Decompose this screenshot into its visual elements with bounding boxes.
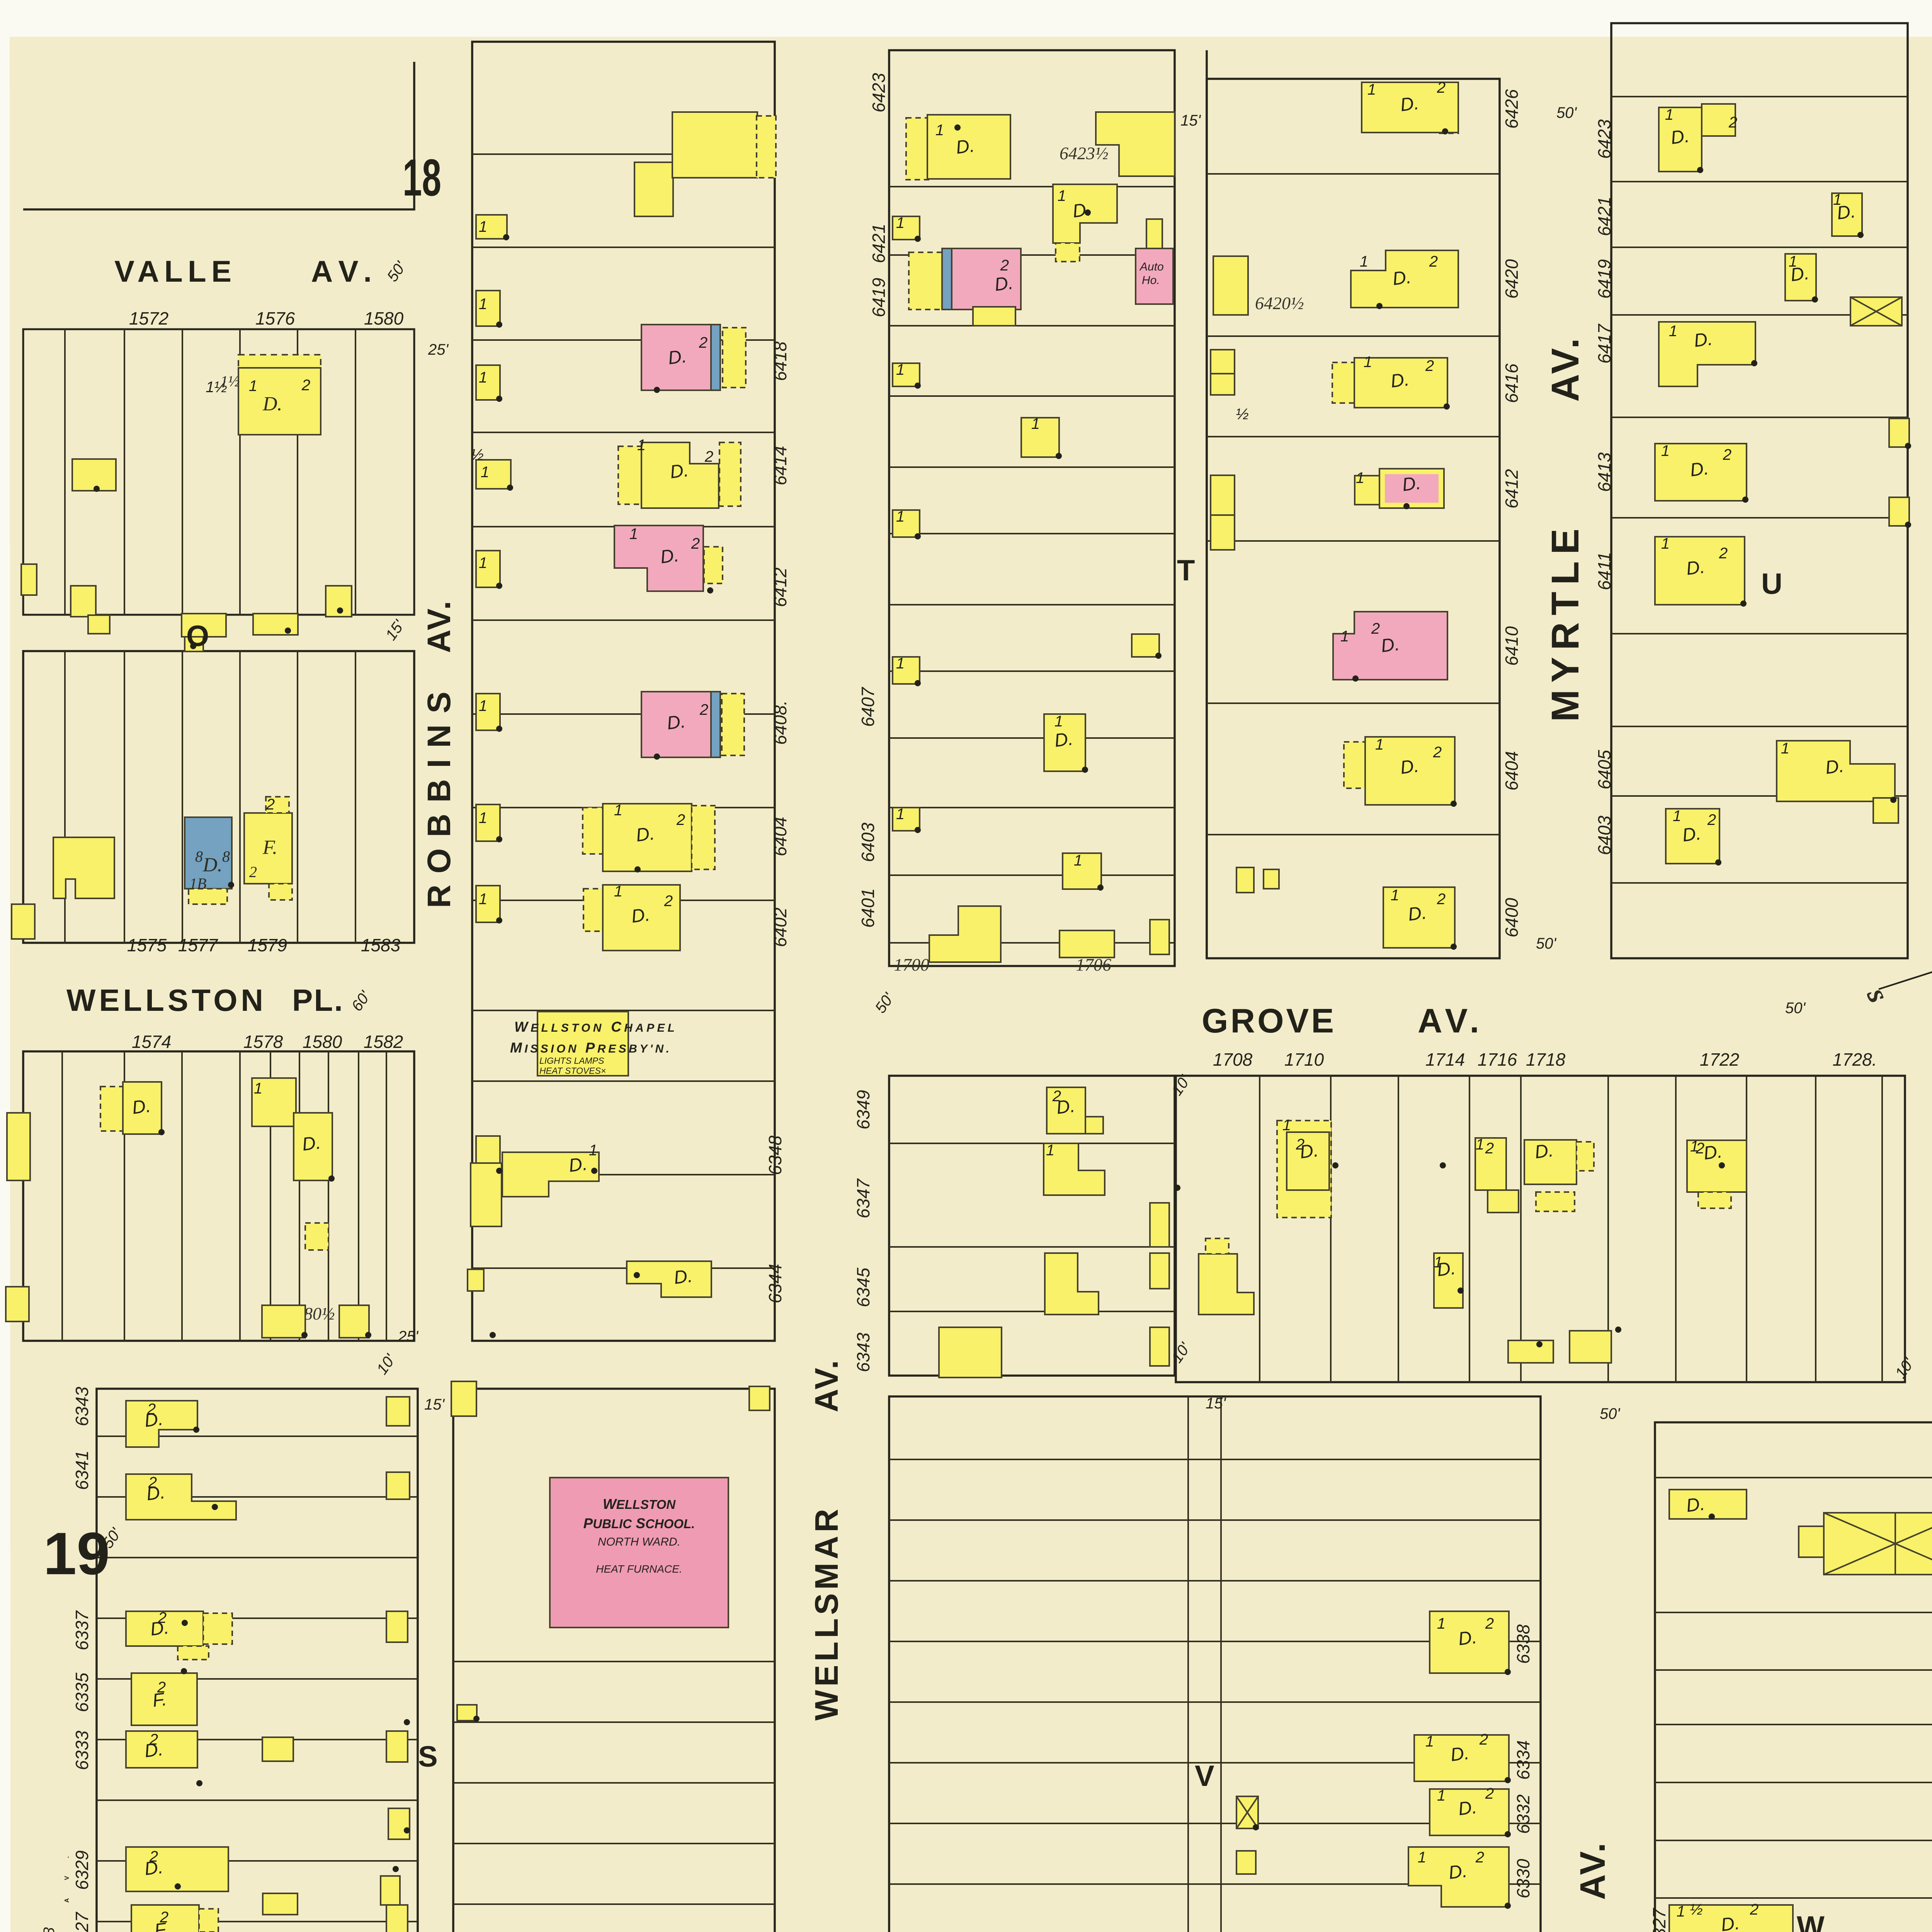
svg-text:6423: 6423 <box>869 73 889 112</box>
svg-text:6420: 6420 <box>1502 259 1522 299</box>
svg-text:1580: 1580 <box>364 308 404 328</box>
svg-text:1: 1 <box>1437 1615 1446 1632</box>
svg-text:D.: D. <box>262 393 282 415</box>
svg-text:6411: 6411 <box>1594 552 1614 590</box>
svg-text:6412: 6412 <box>770 568 790 607</box>
svg-text:D.: D. <box>1681 823 1702 845</box>
svg-text:6423½: 6423½ <box>1060 143 1109 163</box>
svg-text:AV.: AV. <box>1418 1002 1479 1040</box>
svg-text:1: 1 <box>249 378 257 395</box>
svg-text:NORTH WARD.: NORTH WARD. <box>598 1536 680 1548</box>
svg-text:S: S <box>418 1740 438 1773</box>
svg-text:15': 15' <box>1206 1395 1226 1412</box>
svg-text:1716: 1716 <box>1478 1049 1517 1070</box>
svg-text:AV.: AV. <box>808 1360 845 1412</box>
svg-text:6348: 6348 <box>765 1135 785 1175</box>
svg-text:D.: D. <box>993 272 1014 295</box>
svg-text:1580: 1580 <box>303 1032 342 1052</box>
svg-text:6341: 6341 <box>72 1451 92 1490</box>
svg-text:U: U <box>1761 568 1782 600</box>
svg-text:1: 1 <box>1340 628 1349 645</box>
svg-text:1: 1 <box>1789 253 1797 270</box>
svg-text:2: 2 <box>1437 891 1446 908</box>
svg-text:1: 1 <box>1437 1787 1446 1804</box>
svg-text:D.: D. <box>666 711 687 733</box>
svg-text:1: 1 <box>1673 808 1681 825</box>
svg-text:1: 1 <box>1367 81 1376 98</box>
svg-text:6337: 6337 <box>72 1610 92 1650</box>
svg-text:1: 1 <box>896 508 905 525</box>
svg-text:D.: D. <box>635 823 656 845</box>
svg-text:PUBLIC SCHOOL.: PUBLIC SCHOOL. <box>583 1515 695 1531</box>
svg-text:1: 1 <box>1669 323 1677 340</box>
svg-text:O: O <box>186 620 209 653</box>
svg-text:6403: 6403 <box>858 822 878 862</box>
svg-text:2: 2 <box>676 811 685 828</box>
svg-text:D.: D. <box>1702 1141 1723 1163</box>
svg-text:6327: 6327 <box>1649 1908 1669 1932</box>
svg-text:2: 2 <box>1728 114 1737 131</box>
svg-text:6418: 6418 <box>770 341 790 381</box>
svg-text:1708: 1708 <box>1213 1049 1253 1070</box>
svg-text:2: 2 <box>1485 1785 1494 1802</box>
svg-text:1: 1 <box>1054 713 1063 730</box>
svg-text:1: 1 <box>1391 887 1399 904</box>
svg-text:1: 1 <box>254 1080 262 1097</box>
svg-text:15': 15' <box>1180 112 1201 129</box>
svg-text:6330: 6330 <box>1513 1859 1533 1898</box>
svg-text:6421: 6421 <box>1594 197 1614 236</box>
svg-text:HEAT FURNACE.: HEAT FURNACE. <box>596 1563 682 1575</box>
svg-text:6421: 6421 <box>869 224 889 263</box>
svg-text:6335: 6335 <box>72 1672 92 1712</box>
svg-text:2: 2 <box>301 377 310 394</box>
svg-text:2: 2 <box>1485 1140 1494 1157</box>
svg-text:6408.: 6408. <box>770 700 790 745</box>
svg-text:6405: 6405 <box>1594 750 1614 789</box>
svg-text:1: 1 <box>1031 415 1040 432</box>
svg-text:1: 1 <box>1364 354 1372 371</box>
svg-text:Auto: Auto <box>1139 260 1164 273</box>
svg-text:MISSION PRESBY'N.: MISSION PRESBY'N. <box>510 1040 669 1056</box>
svg-text:6419: 6419 <box>1594 259 1614 299</box>
svg-text:2: 2 <box>664 893 673 910</box>
svg-text:6329: 6329 <box>72 1850 92 1890</box>
svg-text:1: 1 <box>1661 535 1670 552</box>
svg-text:1576: 1576 <box>255 308 295 328</box>
svg-text:6343: 6343 <box>853 1332 873 1372</box>
svg-text:GROVE: GROVE <box>1202 1002 1334 1040</box>
svg-text:6404: 6404 <box>1502 751 1522 791</box>
svg-text:D.: D. <box>1670 126 1690 148</box>
svg-text:1: 1 <box>589 1142 597 1159</box>
svg-text:V: V <box>1195 1760 1214 1793</box>
svg-text:8: 8 <box>222 848 230 865</box>
svg-text:6414: 6414 <box>770 446 790 485</box>
svg-text:6343: 6343 <box>72 1386 92 1426</box>
svg-text:6402: 6402 <box>770 908 790 947</box>
svg-text:6423: 6423 <box>1594 119 1614 159</box>
svg-text:1: 1 <box>479 218 487 235</box>
svg-text:1582: 1582 <box>364 1032 403 1052</box>
svg-text:50': 50' <box>1600 1405 1620 1422</box>
svg-text:1572: 1572 <box>129 308 168 328</box>
svg-text:1: 1 <box>1046 1142 1054 1159</box>
svg-text:D.: D. <box>1534 1140 1554 1162</box>
svg-text:D.: D. <box>1380 634 1401 656</box>
svg-text:2: 2 <box>704 448 713 465</box>
svg-text:6344: 6344 <box>765 1264 785 1303</box>
svg-text:2: 2 <box>1000 257 1009 274</box>
svg-text:D.: D. <box>568 1153 588 1176</box>
svg-text:6416: 6416 <box>1502 363 1522 403</box>
svg-text:1: 1 <box>479 697 487 714</box>
svg-text:D.: D. <box>1824 755 1845 778</box>
svg-text:½: ½ <box>1236 406 1248 423</box>
svg-text:2: 2 <box>691 535 700 552</box>
svg-text:6347: 6347 <box>853 1178 873 1218</box>
svg-text:2: 2 <box>1719 545 1728 562</box>
svg-text:D.: D. <box>202 854 223 876</box>
svg-text:15': 15' <box>424 1396 445 1413</box>
svg-text:D.: D. <box>630 904 651 927</box>
svg-text:D.: D. <box>955 135 976 158</box>
svg-text:D.: D. <box>1399 755 1420 778</box>
svg-text:Ho.: Ho. <box>1142 274 1160 287</box>
svg-text:2: 2 <box>249 863 257 881</box>
svg-text:2: 2 <box>149 1731 158 1748</box>
svg-text:1714: 1714 <box>1425 1049 1465 1070</box>
svg-text:2: 2 <box>1437 79 1446 96</box>
svg-text:1700: 1700 <box>894 955 929 975</box>
svg-text:LIGHTS LAMPS: LIGHTS LAMPS <box>539 1056 604 1066</box>
svg-text:2: 2 <box>1707 811 1716 828</box>
svg-text:D.: D. <box>1685 1493 1706 1516</box>
svg-text:D.: D. <box>1685 556 1706 579</box>
svg-text:1718: 1718 <box>1526 1049 1566 1070</box>
svg-text:1: 1 <box>1833 191 1842 208</box>
svg-text:6404: 6404 <box>770 817 790 856</box>
svg-text:8: 8 <box>195 848 203 865</box>
svg-text:1: 1 <box>614 883 622 900</box>
svg-text:6412: 6412 <box>1502 469 1522 509</box>
svg-text:D.: D. <box>1457 1797 1478 1819</box>
svg-text:T: T <box>1177 554 1195 587</box>
svg-text:2: 2 <box>1479 1731 1488 1748</box>
svg-text:D.: D. <box>659 545 680 567</box>
svg-text:D.: D. <box>1689 458 1710 480</box>
svg-text:2: 2 <box>699 334 707 351</box>
svg-text:2: 2 <box>1750 1901 1759 1918</box>
svg-text:D.: D. <box>1401 473 1422 495</box>
svg-text:50': 50' <box>1785 1000 1806 1017</box>
svg-text:8: 8 <box>41 1927 58 1932</box>
svg-text:D.: D. <box>1389 369 1410 391</box>
svg-text:1575: 1575 <box>127 935 167 955</box>
svg-text:2: 2 <box>160 1909 168 1926</box>
svg-text:1579: 1579 <box>248 935 287 955</box>
svg-text:1722: 1722 <box>1700 1049 1739 1070</box>
svg-text:2: 2 <box>1425 357 1434 374</box>
svg-text:PL.: PL. <box>292 983 343 1017</box>
svg-text:1: 1 <box>1476 1136 1484 1153</box>
svg-text:19: 19 <box>43 1520 110 1587</box>
svg-text:1: 1 <box>637 437 646 454</box>
svg-text:1728.: 1728. <box>1832 1049 1877 1070</box>
svg-text:1: 1 <box>1781 740 1789 757</box>
svg-text:1½: 1½ <box>206 379 227 396</box>
svg-text:D.: D. <box>1449 1743 1470 1765</box>
svg-text:6403: 6403 <box>1594 815 1614 855</box>
svg-text:6332: 6332 <box>1513 1794 1533 1834</box>
svg-text:½: ½ <box>1690 1901 1702 1918</box>
svg-text:D.: D. <box>1447 1861 1468 1883</box>
svg-text:2: 2 <box>699 701 708 718</box>
svg-text:1: 1 <box>1375 736 1384 753</box>
svg-text:6426: 6426 <box>1502 89 1522 129</box>
svg-text:½: ½ <box>471 446 483 463</box>
svg-text:1: 1 <box>479 554 487 571</box>
svg-text:25': 25' <box>428 341 449 358</box>
svg-text:18: 18 <box>403 148 441 207</box>
svg-text:1: 1 <box>481 464 489 481</box>
svg-text:D.: D. <box>669 460 690 482</box>
svg-text:6334: 6334 <box>1513 1740 1533 1780</box>
svg-text:1: 1 <box>1690 1138 1699 1155</box>
svg-text:1: 1 <box>479 891 487 908</box>
svg-text:2: 2 <box>1371 620 1380 637</box>
svg-text:D.: D. <box>1407 902 1428 925</box>
svg-text:1: 1 <box>1418 1849 1426 1866</box>
svg-text:AV.: AV. <box>1544 338 1587 402</box>
svg-text:2: 2 <box>266 796 275 813</box>
svg-text:1B: 1B <box>189 875 206 892</box>
svg-text:1: 1 <box>479 369 487 386</box>
svg-text:25': 25' <box>398 1328 418 1345</box>
svg-text:2: 2 <box>1429 253 1438 270</box>
svg-text:1: 1 <box>1282 1117 1291 1134</box>
svg-text:1: 1 <box>1677 1903 1685 1920</box>
svg-text:D.: D. <box>667 346 688 368</box>
svg-text:1583: 1583 <box>361 935 401 955</box>
svg-text:1: 1 <box>935 122 944 139</box>
svg-text:1: 1 <box>479 296 487 313</box>
svg-text:D.: D. <box>1693 328 1714 351</box>
svg-text:WELLSTON: WELLSTON <box>603 1496 676 1512</box>
svg-text:D.: D. <box>1391 267 1412 289</box>
svg-text:W: W <box>1797 1910 1825 1932</box>
svg-text:2: 2 <box>1485 1615 1494 1632</box>
svg-text:1: 1 <box>629 526 638 543</box>
svg-text:2: 2 <box>1296 1136 1304 1153</box>
svg-text:1: 1 <box>896 361 905 378</box>
svg-text:6349: 6349 <box>853 1090 873 1129</box>
svg-text:6419: 6419 <box>869 278 889 317</box>
svg-text:1: 1 <box>614 802 622 819</box>
svg-text:6333: 6333 <box>72 1730 92 1770</box>
svg-text:1: 1 <box>1074 852 1082 869</box>
svg-text:AV.: AV. <box>1573 1843 1612 1900</box>
svg-text:1: 1 <box>896 806 905 823</box>
svg-text:1: 1 <box>1434 1254 1442 1271</box>
svg-text:6345: 6345 <box>853 1267 873 1307</box>
svg-text:1: 1 <box>1360 253 1368 270</box>
svg-text:2: 2 <box>149 1848 158 1865</box>
svg-text:2: 2 <box>1475 1849 1484 1866</box>
svg-text:1578: 1578 <box>243 1032 283 1052</box>
svg-text:2: 2 <box>1052 1088 1061 1105</box>
svg-text:1: 1 <box>896 214 905 231</box>
svg-text:D.: D. <box>1053 728 1074 751</box>
svg-text:D.: D. <box>1399 93 1420 115</box>
svg-text:6420½: 6420½ <box>1255 293 1304 313</box>
svg-text:1574: 1574 <box>132 1032 171 1052</box>
svg-text:HEAT STOVES×: HEAT STOVES× <box>539 1066 606 1076</box>
svg-text:2: 2 <box>158 1609 167 1626</box>
svg-text:1: 1 <box>1661 442 1670 459</box>
svg-text:AV.: AV. <box>421 601 457 653</box>
svg-text:1: 1 <box>479 810 487 827</box>
svg-text:6401: 6401 <box>858 888 878 928</box>
svg-text:D.: D. <box>301 1132 322 1155</box>
svg-text:D.: D. <box>1720 1913 1741 1932</box>
svg-text:50': 50' <box>1556 104 1577 121</box>
svg-text:F.: F. <box>262 837 277 859</box>
svg-text:6407: 6407 <box>858 687 878 727</box>
svg-text:VALLE: VALLE <box>114 254 231 288</box>
svg-text:2: 2 <box>148 1474 157 1491</box>
svg-text:6327: 6327 <box>72 1912 92 1932</box>
svg-text:2: 2 <box>157 1679 166 1696</box>
svg-text:2: 2 <box>147 1401 156 1418</box>
svg-text:2: 2 <box>1433 744 1442 761</box>
svg-text:6417: 6417 <box>1594 323 1614 364</box>
svg-text:D.: D. <box>1457 1627 1478 1649</box>
svg-text:1: 1 <box>1425 1733 1434 1750</box>
svg-text:1: 1 <box>1058 187 1066 204</box>
svg-text:1: 1 <box>1356 469 1364 486</box>
svg-text:6413: 6413 <box>1594 452 1614 492</box>
svg-text:6338: 6338 <box>1513 1624 1533 1664</box>
svg-text:6410: 6410 <box>1502 626 1522 666</box>
svg-text:1: 1 <box>896 655 905 672</box>
svg-text:D.: D. <box>131 1095 152 1118</box>
svg-text:50': 50' <box>1536 935 1556 952</box>
svg-text:1577: 1577 <box>178 935 218 955</box>
svg-text:6400: 6400 <box>1502 898 1522 937</box>
svg-text:1710: 1710 <box>1284 1049 1324 1070</box>
svg-text:D.: D. <box>673 1265 694 1288</box>
svg-text:1: 1 <box>1665 106 1673 123</box>
svg-text:2: 2 <box>1723 446 1731 463</box>
